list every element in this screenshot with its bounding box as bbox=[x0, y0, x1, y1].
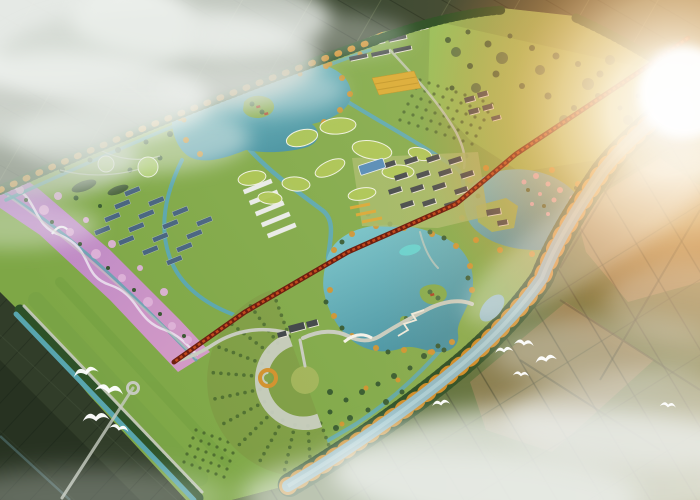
cloud bbox=[190, 11, 410, 59]
park-masterplan-rendering: Aerial bird's-eye rendering of a wetland… bbox=[0, 0, 700, 500]
aerial-rendering-stage: Aerial bird's-eye rendering of a wetland… bbox=[0, 0, 700, 500]
atmosphere bbox=[0, 0, 700, 500]
cloud bbox=[155, 64, 345, 116]
